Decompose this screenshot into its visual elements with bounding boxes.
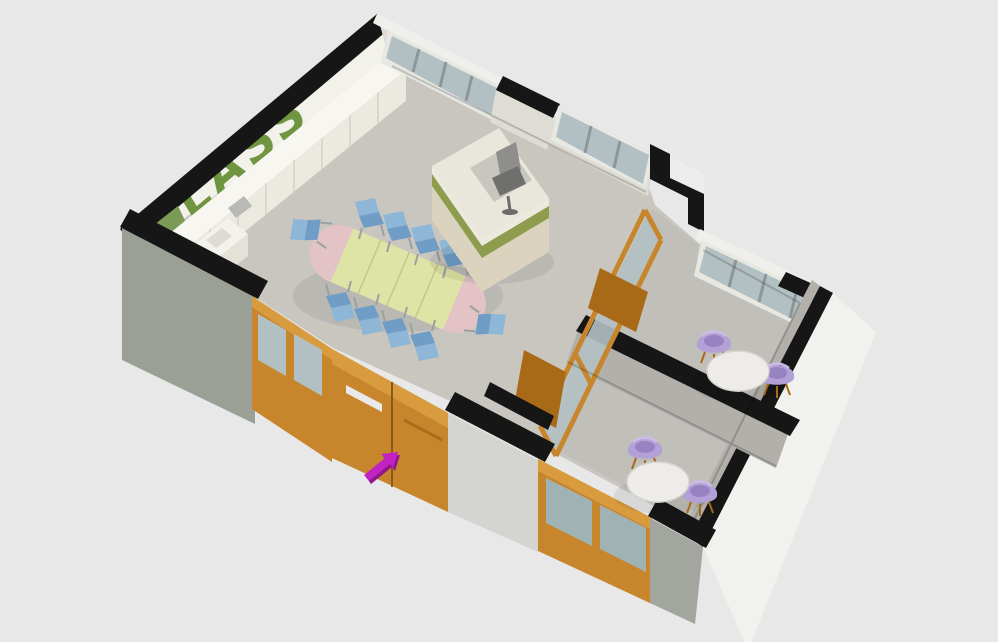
meeting-table (627, 462, 689, 503)
meeting-table (707, 351, 769, 392)
floor-plan-render: CLASS (0, 0, 998, 642)
